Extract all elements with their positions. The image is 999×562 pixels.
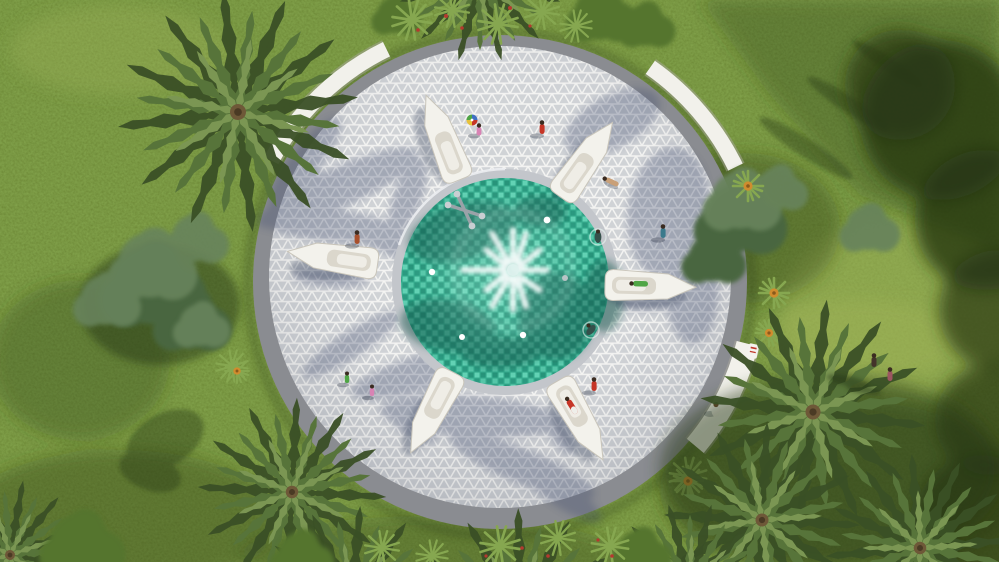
grass-walker-2 — [888, 367, 893, 381]
beach-ball — [467, 115, 478, 126]
scene-canvas — [0, 0, 999, 562]
grass-walker-1 — [872, 353, 877, 367]
aerial-render — [0, 0, 999, 562]
